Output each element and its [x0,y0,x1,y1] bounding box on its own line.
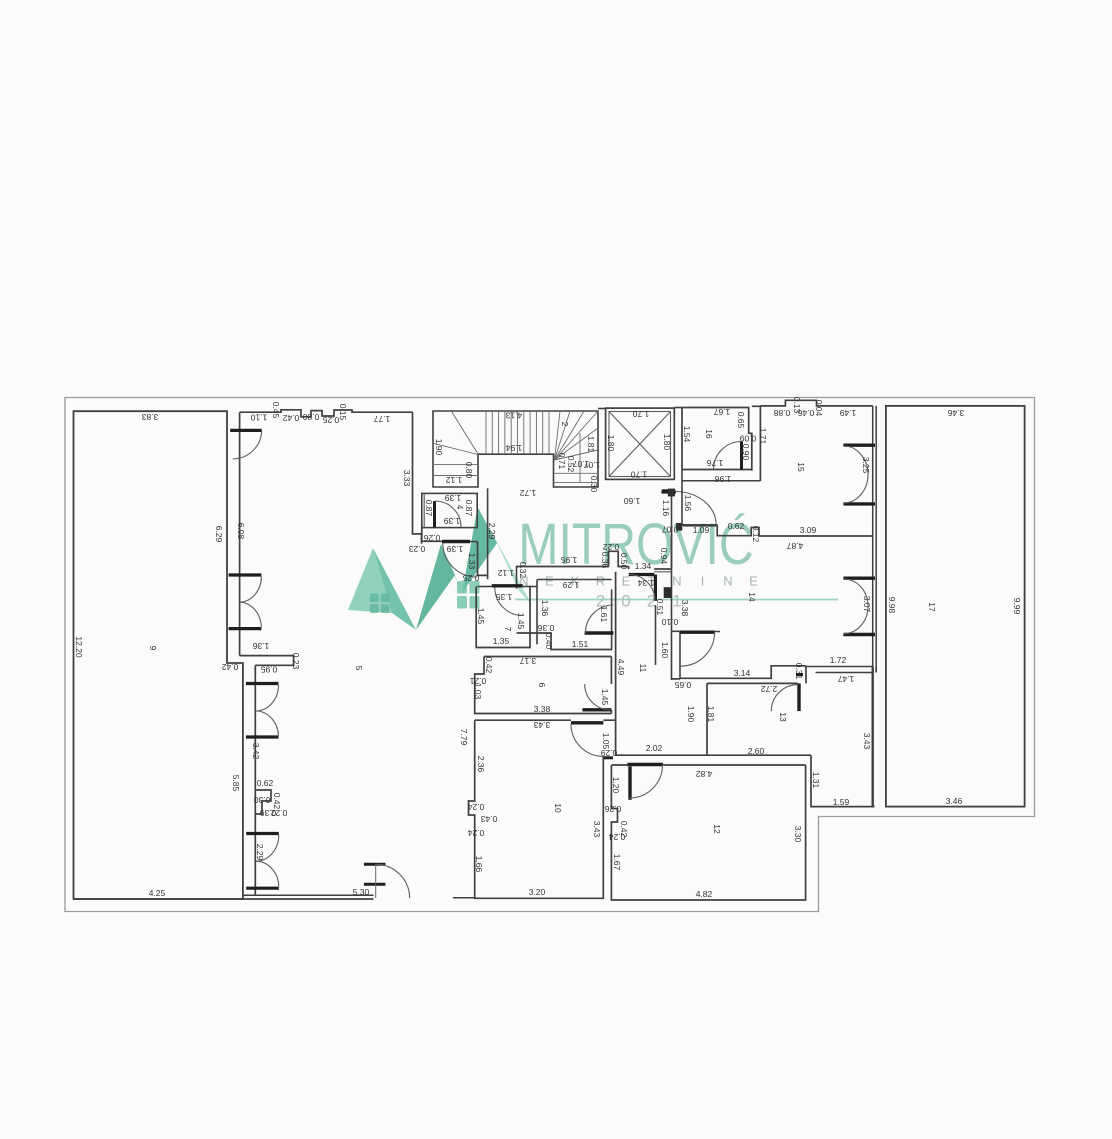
svg-text:1.47: 1.47 [837,674,854,684]
svg-text:2.60: 2.60 [748,746,765,756]
svg-text:1.39: 1.39 [446,544,463,554]
svg-text:1.70: 1.70 [630,470,647,480]
svg-text:2.29: 2.29 [255,844,265,861]
svg-text:1.34: 1.34 [635,561,652,571]
svg-text:1.80: 1.80 [606,435,616,452]
svg-text:0.31: 0.31 [794,663,804,680]
svg-text:1.36: 1.36 [540,600,550,617]
svg-text:3.09: 3.09 [800,525,817,535]
svg-text:11: 11 [638,664,648,673]
svg-text:1.59: 1.59 [833,797,850,807]
svg-text:0.90: 0.90 [741,444,751,461]
svg-text:1.56: 1.56 [683,495,693,512]
svg-text:4.82: 4.82 [695,769,712,779]
svg-text:1.94: 1.94 [505,443,522,453]
svg-text:0.04: 0.04 [814,400,824,417]
svg-text:5.30: 5.30 [353,887,370,897]
svg-text:2.02: 2.02 [646,743,663,753]
svg-text:1.45: 1.45 [476,608,486,625]
svg-text:1.90: 1.90 [686,706,696,723]
svg-text:1.81: 1.81 [706,706,716,723]
svg-text:0.10: 0.10 [661,617,678,627]
svg-text:0.25: 0.25 [462,573,479,583]
svg-text:0.62: 0.62 [728,521,745,531]
svg-text:0.42: 0.42 [282,413,299,423]
svg-text:1.35: 1.35 [493,636,510,646]
svg-text:3.30: 3.30 [793,826,803,843]
svg-text:15: 15 [796,462,806,472]
svg-text:0.22: 0.22 [602,542,619,552]
svg-text:R: R [596,574,605,589]
svg-text:1.67: 1.67 [713,407,730,417]
svg-text:3.38: 3.38 [680,600,690,617]
svg-text:1.72: 1.72 [519,488,536,498]
svg-text:0.32: 0.32 [518,562,528,579]
svg-text:12: 12 [712,824,722,834]
svg-text:0.12: 0.12 [751,526,761,543]
svg-text:1.96: 1.96 [714,474,731,484]
svg-text:I: I [701,574,705,589]
svg-text:14: 14 [747,592,757,602]
svg-text:6.08: 6.08 [236,523,246,540]
svg-text:0.80: 0.80 [464,462,474,479]
svg-text:0.36: 0.36 [600,552,610,569]
svg-text:1.80: 1.80 [662,434,672,451]
svg-text:1.71: 1.71 [758,428,768,445]
svg-text:1.12: 1.12 [497,568,514,578]
svg-text:0.09: 0.09 [739,434,756,444]
svg-text:1.54: 1.54 [682,426,692,443]
svg-text:0.15: 0.15 [338,404,348,421]
svg-text:1.16: 1.16 [661,500,671,517]
svg-text:N: N [723,574,732,589]
svg-text:0.45: 0.45 [271,402,281,419]
svg-text:9.99: 9.99 [1012,598,1022,615]
svg-text:0.36: 0.36 [537,623,554,633]
svg-text:4: 4 [455,505,465,510]
svg-text:0.24: 0.24 [467,828,484,838]
svg-text:0.07: 0.07 [661,525,678,535]
svg-text:4.25: 4.25 [149,888,166,898]
svg-text:9: 9 [148,646,158,651]
svg-text:2.29: 2.29 [487,523,497,540]
svg-text:0.88: 0.88 [773,408,790,418]
svg-text:0.30: 0.30 [589,476,599,493]
svg-text:0.42: 0.42 [272,793,282,810]
svg-text:3.17: 3.17 [519,656,536,666]
svg-text:12.20: 12.20 [74,636,84,658]
svg-text:0.87: 0.87 [424,500,434,517]
svg-text:0.26: 0.26 [604,804,621,814]
svg-text:1.07: 1.07 [583,460,600,470]
svg-text:3.25: 3.25 [861,457,871,474]
svg-text:1.70: 1.70 [632,409,649,419]
svg-text:0.95: 0.95 [260,665,277,675]
svg-text:1.29: 1.29 [562,580,579,590]
svg-text:1.39: 1.39 [444,493,461,503]
svg-text:1.77: 1.77 [373,414,390,424]
svg-text:0.23: 0.23 [291,653,301,670]
svg-text:4.82: 4.82 [696,889,713,899]
svg-text:3.20: 3.20 [529,887,546,897]
svg-text:1.35: 1.35 [495,592,512,602]
svg-text:4.87: 4.87 [786,541,803,551]
svg-text:0.65: 0.65 [736,412,746,429]
svg-text:E: E [749,574,758,589]
svg-text:3.46: 3.46 [947,408,964,418]
svg-text:1.10: 1.10 [250,413,267,423]
svg-text:0.71: 0.71 [557,453,567,470]
svg-text:2.72: 2.72 [760,684,777,694]
svg-text:1.45: 1.45 [600,689,610,706]
svg-text:3.43: 3.43 [533,720,550,730]
svg-text:3.46: 3.46 [946,796,963,806]
svg-text:3.07: 3.07 [862,596,872,613]
svg-text:1.05: 1.05 [601,733,611,750]
svg-text:1.36: 1.36 [252,641,269,651]
svg-text:0.24: 0.24 [608,832,625,842]
svg-text:2: 2 [560,422,570,427]
svg-text:0.42: 0.42 [484,657,494,674]
svg-text:0.26: 0.26 [423,533,440,543]
svg-text:0.62: 0.62 [257,778,274,788]
svg-text:0.42: 0.42 [221,662,238,672]
svg-text:1.95: 1.95 [560,555,577,565]
svg-text:0.51: 0.51 [655,599,665,616]
svg-text:0.46: 0.46 [797,408,814,418]
svg-text:1.66: 1.66 [474,856,484,873]
svg-text:1.03: 1.03 [473,683,483,700]
svg-text:4.49: 4.49 [616,659,626,676]
svg-text:3.83: 3.83 [141,412,158,422]
svg-text:N: N [672,574,681,589]
svg-text:1.49: 1.49 [839,408,856,418]
svg-text:1.61: 1.61 [599,606,609,623]
svg-text:0.94: 0.94 [659,548,669,565]
svg-text:4.13: 4.13 [505,411,522,421]
svg-text:0.65: 0.65 [674,680,691,690]
svg-text:1.12: 1.12 [445,475,462,485]
svg-text:3.43: 3.43 [862,733,872,750]
svg-text:5: 5 [354,666,364,671]
svg-text:0.43: 0.43 [480,814,497,824]
svg-text:1.76: 1.76 [706,458,723,468]
svg-text:1.72: 1.72 [830,655,847,665]
svg-text:1.90: 1.90 [434,439,444,456]
svg-text:0.80: 0.80 [302,412,319,422]
svg-text:1.51: 1.51 [572,639,589,649]
svg-text:7.79: 7.79 [459,729,469,746]
svg-text:3.43: 3.43 [592,821,602,838]
svg-text:0.23: 0.23 [408,544,425,554]
svg-text:1.20: 1.20 [611,777,621,794]
svg-text:0.30: 0.30 [253,795,270,805]
svg-text:10: 10 [553,803,563,813]
svg-text:3.42: 3.42 [251,743,261,760]
svg-text:6.29: 6.29 [214,526,224,543]
svg-text:1.45: 1.45 [516,613,526,630]
svg-text:9.98: 9.98 [887,597,897,614]
svg-text:0.24: 0.24 [467,802,484,812]
svg-text:7: 7 [503,627,513,632]
svg-text:0.22: 0.22 [270,808,287,818]
svg-text:3.33: 3.33 [402,470,412,487]
svg-text:17: 17 [927,602,937,612]
svg-text:0.50: 0.50 [619,553,629,570]
svg-text:0.40: 0.40 [544,633,554,650]
svg-text:0: 0 [621,592,630,611]
svg-text:0.87: 0.87 [464,500,474,517]
svg-text:1.67: 1.67 [612,854,622,871]
svg-text:1.34: 1.34 [637,578,654,588]
svg-text:1.33: 1.33 [467,553,477,570]
svg-text:3.14: 3.14 [734,668,751,678]
svg-text:1.60: 1.60 [623,496,640,506]
svg-text:1.31: 1.31 [811,772,821,789]
svg-text:2.36: 2.36 [476,756,486,773]
svg-text:1.09: 1.09 [693,525,710,535]
svg-text:13: 13 [778,712,788,722]
svg-text:3.38: 3.38 [534,704,551,714]
svg-text:6: 6 [537,683,547,688]
svg-text:1.39: 1.39 [443,516,460,526]
svg-text:1.60: 1.60 [660,642,670,659]
svg-text:1.81: 1.81 [586,436,596,453]
svg-text:16: 16 [704,429,714,439]
svg-text:5.85: 5.85 [231,775,241,792]
svg-text:0.25: 0.25 [322,415,339,425]
svg-text:E: E [545,574,554,589]
